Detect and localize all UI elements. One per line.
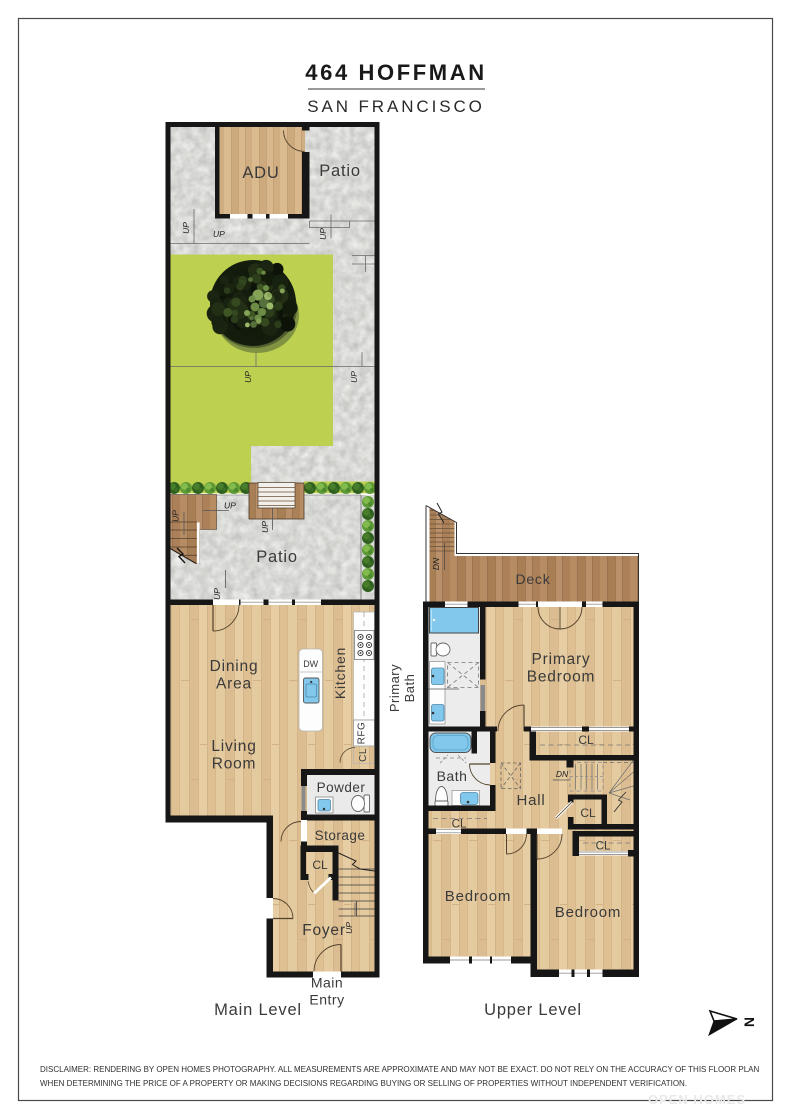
svg-text:Hall: Hall <box>516 792 545 809</box>
svg-text:UP: UP <box>171 510 181 522</box>
svg-text:N: N <box>741 1017 757 1027</box>
svg-text:CL: CL <box>596 841 611 853</box>
svg-text:Main Level: Main Level <box>214 1001 302 1019</box>
svg-text:DN: DN <box>431 557 441 570</box>
svg-text:UP: UP <box>181 222 191 234</box>
svg-text:DW: DW <box>303 659 318 669</box>
svg-text:Primary: Primary <box>387 664 402 712</box>
svg-text:SAN FRANCISCO: SAN FRANCISCO <box>307 97 485 116</box>
svg-text:Primary: Primary <box>532 651 591 668</box>
svg-text:Deck: Deck <box>515 571 550 587</box>
svg-text:CL: CL <box>358 748 369 762</box>
svg-text:UP: UP <box>243 371 253 383</box>
svg-text:Foyer: Foyer <box>302 922 346 939</box>
svg-text:ADU: ADU <box>242 164 279 182</box>
svg-text:UP: UP <box>318 228 328 240</box>
svg-text:DN: DN <box>556 769 569 779</box>
svg-text:UP: UP <box>349 371 359 383</box>
svg-text:Bedroom: Bedroom <box>445 888 511 905</box>
svg-text:Bath: Bath <box>437 768 468 784</box>
svg-text:Dining: Dining <box>210 658 259 675</box>
svg-text:UP: UP <box>213 229 225 239</box>
svg-text:Main: Main <box>311 975 343 991</box>
svg-text:Bedroom: Bedroom <box>555 904 621 921</box>
svg-text:Bath: Bath <box>402 674 417 703</box>
svg-text:Living: Living <box>211 738 256 755</box>
svg-text:Kitchen: Kitchen <box>332 647 348 699</box>
svg-text:OPEN HOMES: OPEN HOMES <box>648 1092 746 1107</box>
svg-text:Storage: Storage <box>315 828 366 843</box>
svg-text:UP: UP <box>224 501 236 511</box>
svg-text:464 HOFFMAN: 464 HOFFMAN <box>305 60 486 85</box>
svg-text:Upper Level: Upper Level <box>484 1001 582 1019</box>
svg-text:Powder: Powder <box>317 780 366 795</box>
svg-text:Patio: Patio <box>256 548 298 566</box>
svg-text:Patio: Patio <box>319 162 361 180</box>
svg-text:CL: CL <box>312 858 328 872</box>
svg-text:Room: Room <box>212 756 257 773</box>
svg-text:Area: Area <box>216 676 252 693</box>
svg-text:DISCLAIMER: RENDERING BY OPEN: DISCLAIMER: RENDERING BY OPEN HOMES PHOT… <box>40 1065 760 1074</box>
svg-text:CL: CL <box>580 806 596 820</box>
svg-text:Bedroom: Bedroom <box>527 669 596 686</box>
svg-text:UP: UP <box>260 521 270 533</box>
svg-text:Entry: Entry <box>309 992 344 1008</box>
svg-text:UP: UP <box>212 588 222 600</box>
svg-text:WHEN DETERMINING THE PRICE OF: WHEN DETERMINING THE PRICE OF A PROPERTY… <box>40 1079 687 1088</box>
svg-text:RFG: RFG <box>357 722 368 745</box>
